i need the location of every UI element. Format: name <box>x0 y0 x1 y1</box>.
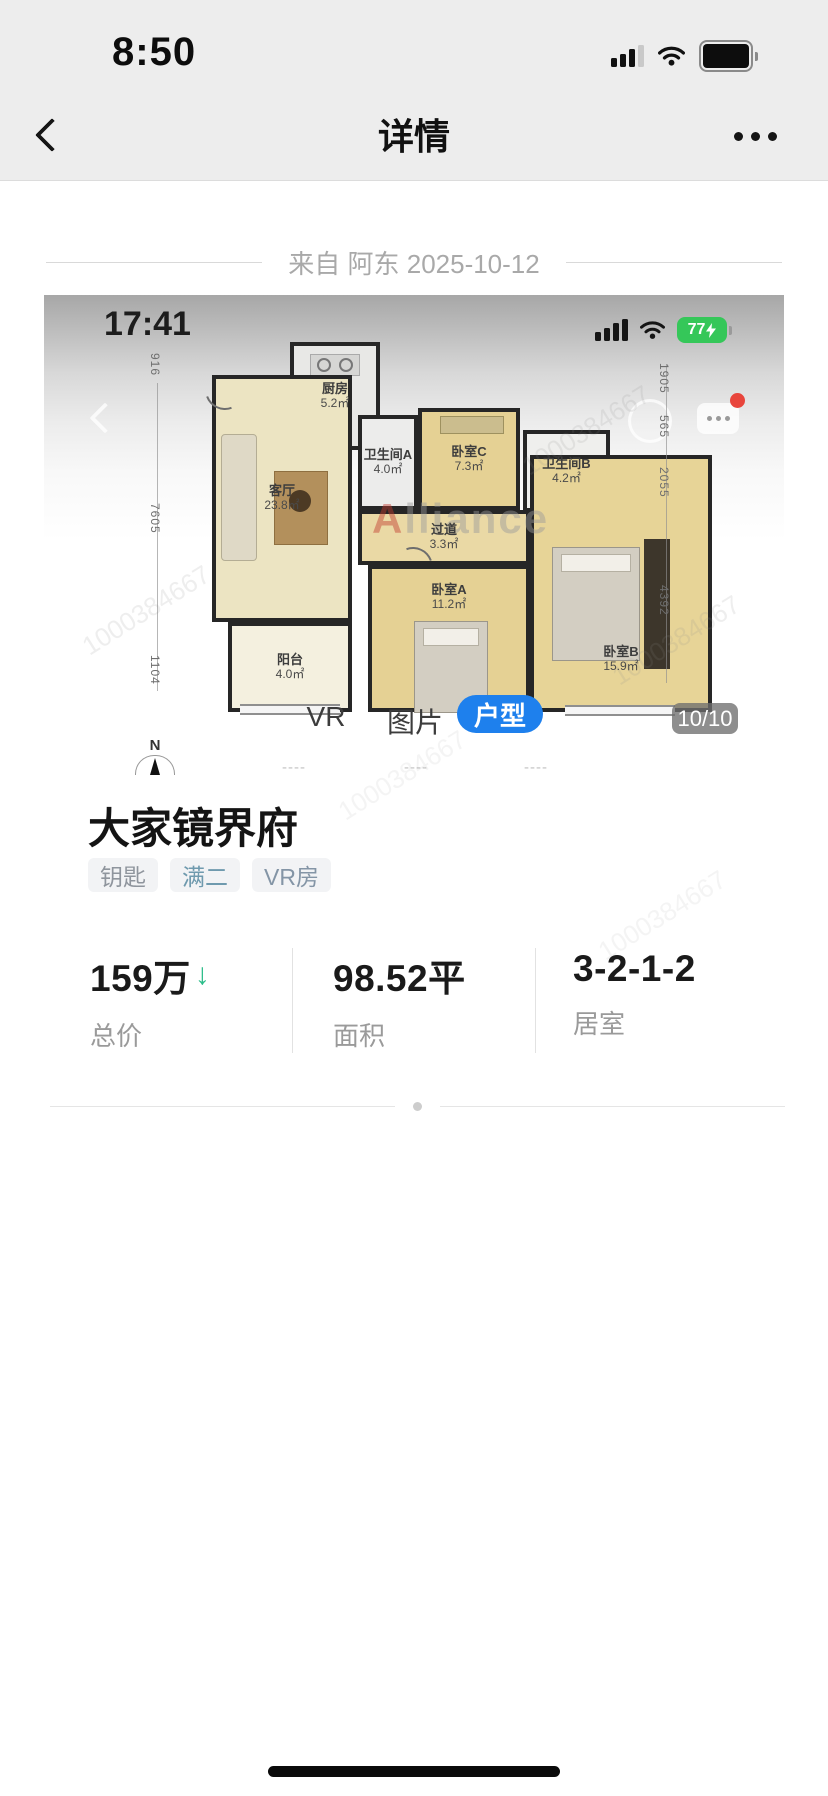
wifi-icon <box>640 321 665 339</box>
screen: 8:50 详情 来自 阿东 2025-10-12 17:41 <box>0 0 828 1796</box>
room-area: 4.0㎡ <box>276 668 305 682</box>
source-line: 来自 阿东 2025-10-12 <box>46 244 782 281</box>
tag-over-two-years: 满二 <box>170 858 240 892</box>
divider-line <box>46 262 262 263</box>
room-name: 卧室C <box>451 445 486 460</box>
home-indicator[interactable] <box>268 1766 560 1777</box>
alliance-watermark: Alliance <box>372 495 549 543</box>
room-name: 厨房 <box>322 382 348 397</box>
status-icons <box>611 40 758 72</box>
dimension-label: 916 <box>148 353 162 376</box>
compass-icon: N <box>135 737 175 775</box>
page-title: 详情 <box>0 108 828 160</box>
nav-bar: 详情 <box>0 88 828 180</box>
photo-viewer[interactable]: 17:41 77 厨房5.2㎡ <box>44 295 784 785</box>
divider-line <box>440 1106 785 1107</box>
dimension-label: 4392 <box>657 585 671 616</box>
stove-icon <box>310 354 360 376</box>
window-marking <box>565 705 675 716</box>
tag-vr-room: VR房 <box>252 858 331 892</box>
room-balcony: 阳台4.0㎡ <box>228 622 352 712</box>
divider-line <box>566 262 782 263</box>
top-chrome: 8:50 详情 <box>0 0 828 181</box>
room-bed-b: 卧室B15.9㎡ <box>530 455 712 712</box>
tag-list: 钥匙 满二 VR房 <box>88 858 331 892</box>
dimension-label: 2055 <box>657 467 671 498</box>
room-name: 客厅 <box>269 484 295 499</box>
battery-icon: 77 <box>677 317 732 343</box>
photo-counter-badge: 10/10 <box>672 703 738 734</box>
inner-status-time: 17:41 <box>104 305 191 344</box>
tag-keys: 钥匙 <box>88 858 158 892</box>
chevron-left-icon <box>89 402 120 433</box>
stat-value: 98.52平 <box>333 948 466 1002</box>
section-divider <box>50 1102 785 1111</box>
divider-line <box>50 1106 395 1107</box>
room-name: 过道 <box>431 523 457 538</box>
room-area: 11.2㎡ <box>432 598 466 612</box>
more-icon <box>734 132 743 141</box>
room-area: 5.2㎡ <box>321 397 350 411</box>
stats-row: 159万↓ 总价 98.52平 面积 3-2-1-2 居室 <box>90 948 784 1053</box>
room-name: 卧室A <box>431 583 466 598</box>
divider-dot <box>413 1102 422 1111</box>
dimension-label: 7605 <box>148 503 162 534</box>
battery-icon <box>699 40 758 72</box>
room-area: 3.3㎡ <box>430 538 459 552</box>
dimension-line <box>157 383 158 691</box>
stat-area: 98.52平 面积 <box>292 948 535 1053</box>
stat-label: 面积 <box>333 1016 535 1053</box>
stat-total-price: 159万↓ 总价 <box>90 948 292 1053</box>
bay-window-icon <box>440 416 504 434</box>
faint-dimension: ---- <box>282 759 306 776</box>
room-area: 4.0㎡ <box>374 463 403 477</box>
status-time: 8:50 <box>112 30 196 75</box>
inner-status-icons: 77 <box>595 317 732 343</box>
room-living: 客厅23.8㎡ <box>212 375 352 622</box>
room-name: 卫生间A <box>364 448 412 463</box>
room-name: 阳台 <box>277 653 303 668</box>
stat-value: 3-2-1-2 <box>573 948 696 990</box>
wifi-icon <box>658 46 685 66</box>
room-area: 4.2㎡ <box>552 472 581 486</box>
dimension-label: 1905 <box>657 363 671 394</box>
signal-icon <box>611 45 644 67</box>
room-name: 卧室B <box>603 645 638 660</box>
stat-rooms: 3-2-1-2 居室 <box>535 948 784 1053</box>
room-area: 15.9㎡ <box>603 660 638 674</box>
dimension-label: 1104 <box>148 655 162 685</box>
room-name: 卫生间B <box>542 457 590 472</box>
room-area: 23.8㎡ <box>264 499 299 513</box>
listing-title: 大家镜界府 <box>88 795 298 856</box>
stat-value: 159万 <box>90 948 191 1002</box>
sofa-icon <box>221 434 257 561</box>
status-bar: 8:50 <box>0 0 828 88</box>
room-bed-a: 卧室A11.2㎡ <box>368 565 530 712</box>
faint-dimension: ---- <box>524 759 548 776</box>
tab-vr[interactable]: VR <box>296 701 356 733</box>
signal-icon <box>595 319 628 341</box>
stat-label: 总价 <box>90 1016 292 1053</box>
carousel-prev-button[interactable] <box>84 399 124 439</box>
room-area: 7.3㎡ <box>455 460 484 474</box>
notification-dot <box>730 393 745 408</box>
more-button[interactable] <box>720 116 790 156</box>
price-down-icon: ↓ <box>195 958 210 992</box>
dimension-label: 565 <box>657 415 671 438</box>
stat-label: 居室 <box>573 1004 784 1041</box>
tab-floorplan[interactable]: 户型 <box>457 695 543 733</box>
source-text: 来自 阿东 2025-10-12 <box>288 244 539 281</box>
charging-bolt-icon <box>706 323 716 338</box>
